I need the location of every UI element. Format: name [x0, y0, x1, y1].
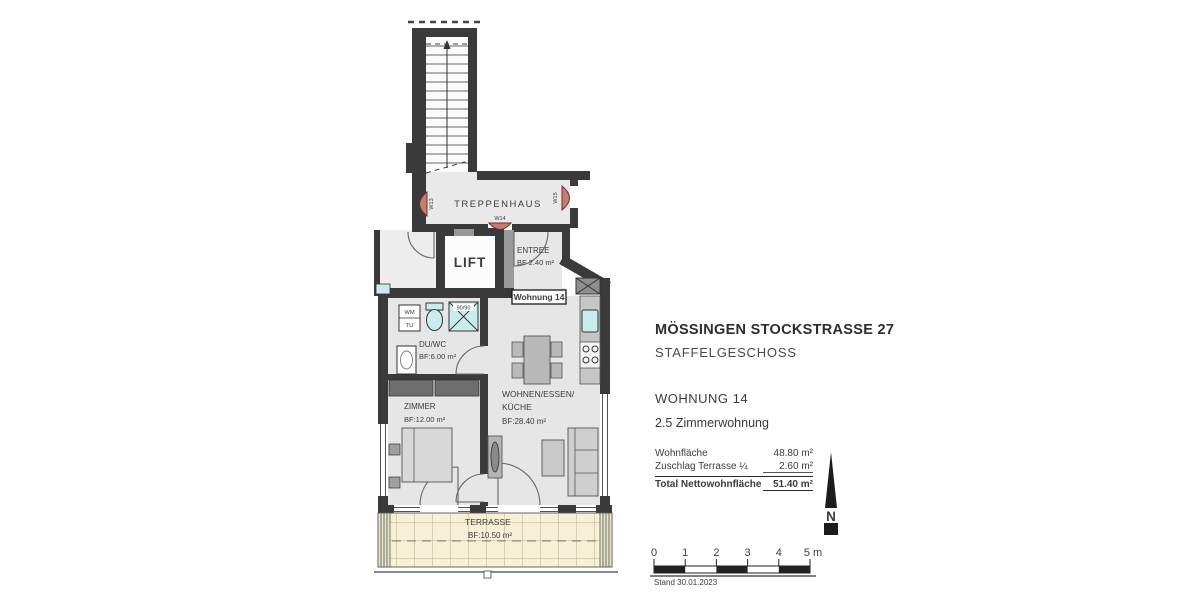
scale-tick-0: 0	[651, 547, 657, 559]
north-label: N	[826, 509, 836, 524]
wall	[470, 505, 486, 513]
sink-icon	[582, 310, 598, 332]
toilet-tank	[426, 303, 443, 310]
duwc-area: BF:6.00 m²	[419, 352, 457, 361]
info-panel: MÖSSINGEN STOCKSTRASSE 27 STAFFELGESCHOS…	[655, 322, 875, 492]
scale-seg	[779, 566, 810, 573]
scale-ticks	[654, 559, 810, 566]
lift-door	[454, 229, 474, 236]
floor-plan: W13 W15 W14 WM TU 90/90	[0, 0, 1200, 600]
survey-marker-icon	[484, 571, 491, 578]
area-value: 48.80 m²	[763, 448, 813, 459]
cooktop	[580, 342, 600, 368]
unit-type: 2.5 Zimmerwohnung	[655, 416, 875, 430]
wall	[378, 505, 394, 513]
area-label: Zuschlag Terrasse ¼	[655, 461, 748, 472]
total-value: 51.40 m²	[763, 479, 813, 491]
duwc-label: DU/WC	[419, 340, 446, 349]
toilet-icon	[427, 310, 443, 331]
wall	[480, 374, 488, 474]
terrasse-area: BF:10.50 m²	[468, 531, 512, 540]
wall	[596, 505, 612, 513]
door-w13-label: W13	[429, 198, 435, 209]
closet	[389, 380, 433, 396]
date-note: Stand 30.01.2023	[654, 578, 718, 587]
wall	[378, 288, 514, 298]
shower-size-label: 90/90	[457, 306, 471, 312]
wohnen-label-2: KÜCHE	[502, 402, 532, 412]
area-row-terrasse: Zuschlag Terrasse ¼ 2.60 m²	[655, 460, 813, 474]
area-label: Wohnfläche	[655, 448, 708, 459]
door-w15-label: W15	[553, 192, 559, 203]
shaft-block	[504, 230, 514, 292]
terrasse-label: TERRASSE	[465, 517, 511, 527]
closet	[435, 380, 479, 396]
scale-tick-4: 4	[776, 547, 782, 559]
scale-tick-3: 3	[745, 547, 751, 559]
lift-wall	[495, 228, 504, 296]
area-row-wohnflaeche: Wohnfläche 48.80 m²	[655, 447, 813, 460]
wall	[600, 278, 610, 394]
scale-seg	[716, 566, 747, 573]
total-label: Total Nettowohnfläche	[655, 479, 761, 490]
wall	[512, 224, 570, 232]
window-east	[603, 394, 608, 496]
entree-label: ENTREE	[517, 246, 549, 255]
unit-tag-label: Wohnung 14	[514, 292, 565, 302]
project-title: MÖSSINGEN STOCKSTRASSE 27	[655, 322, 875, 338]
sideboard-oval-icon	[491, 442, 499, 472]
wall	[406, 143, 413, 173]
washer-label: WM	[404, 310, 414, 316]
wall	[480, 296, 488, 346]
floor-name: STAFFELGESCHOSS	[655, 345, 875, 360]
treppenhaus-label: TREPPENHAUS	[454, 199, 542, 210]
wall	[570, 180, 578, 186]
scale-tick-1: 1	[682, 547, 688, 559]
door-w14-label: W14	[494, 216, 505, 222]
wall	[412, 28, 477, 37]
north-base	[824, 523, 838, 535]
area-value: 2.60 m²	[763, 461, 813, 473]
lift-label: LIFT	[454, 255, 487, 270]
window-west	[381, 424, 386, 496]
wall	[468, 37, 477, 172]
area-table: Wohnfläche 48.80 m² Zuschlag Terrasse ¼ …	[655, 447, 813, 492]
entree-area: BF 2.40 m²	[517, 258, 555, 267]
dining-table	[524, 336, 550, 384]
zimmer-area: BF:12.00 m²	[404, 415, 446, 424]
wall	[558, 505, 576, 513]
wohnen-area: BF:28.40 m²	[502, 417, 546, 426]
unit-name: WOHNUNG 14	[655, 391, 875, 406]
scale-tick-5: 5 m	[804, 547, 822, 559]
scale-seg	[654, 566, 685, 573]
bed	[402, 428, 452, 482]
kitchen-counter	[580, 296, 600, 384]
zimmer-label: ZIMMER	[404, 402, 436, 411]
washbasin	[397, 346, 416, 374]
neighbor-floor	[374, 230, 436, 288]
coffee-table	[542, 440, 564, 476]
dryer-label: TU	[406, 323, 414, 329]
nightstand	[389, 444, 400, 455]
scale-bar: 0 1 2 3 4 5 m Stand 30.01.2023	[650, 547, 822, 587]
lift-wall	[436, 228, 445, 296]
scale-tick-2: 2	[713, 547, 719, 559]
wall	[477, 171, 590, 180]
area-row-total: Total Nettowohnfläche 51.40 m²	[655, 476, 813, 492]
wall	[388, 374, 480, 380]
sofa	[568, 428, 598, 496]
wall	[378, 288, 388, 424]
wohnen-label-1: WOHNEN/ESSEN/	[502, 389, 575, 399]
neighbor-fixture	[376, 284, 390, 294]
wall	[570, 208, 578, 228]
nightstand	[389, 477, 400, 488]
